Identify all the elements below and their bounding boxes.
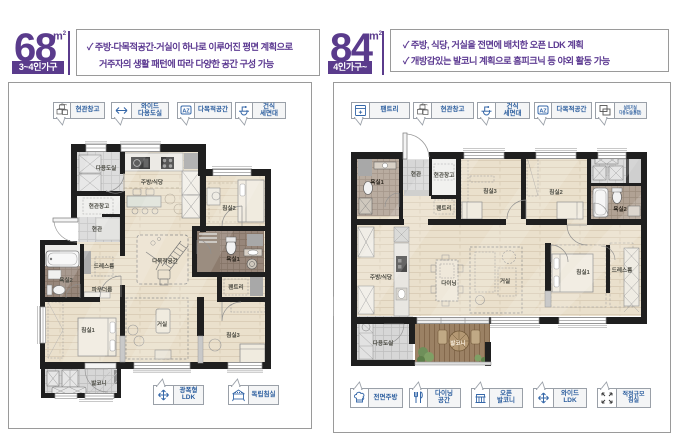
- svg-text:침실2: 침실2: [549, 188, 562, 196]
- svg-text:주방/식당: 주방/식당: [370, 273, 393, 281]
- svg-text:욕실1: 욕실1: [370, 178, 383, 186]
- svg-text:침실3: 침실3: [483, 187, 496, 195]
- svg-text:현관: 현관: [411, 170, 422, 178]
- svg-text:거실: 거실: [500, 277, 510, 285]
- svg-text:드레스룸: 드레스룸: [612, 266, 633, 274]
- svg-text:현관창고: 현관창고: [434, 171, 455, 179]
- svg-text:다이닝: 다이닝: [441, 279, 456, 287]
- svg-text:발코니: 발코니: [450, 339, 465, 347]
- svg-text:다용도실: 다용도실: [373, 339, 394, 347]
- svg-text:침실1: 침실1: [576, 268, 589, 276]
- svg-text:욕실2: 욕실2: [613, 205, 626, 213]
- svg-text:팬트리: 팬트리: [436, 204, 451, 212]
